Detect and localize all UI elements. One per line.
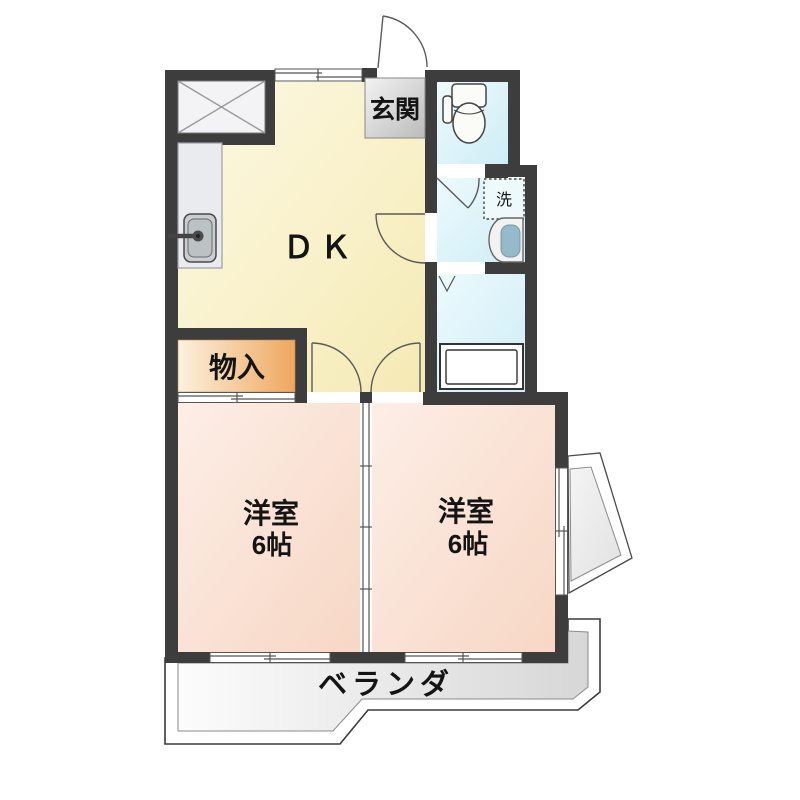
wall-segment (522, 652, 568, 663)
wall-segment (425, 70, 520, 82)
door-opening (437, 164, 485, 178)
wall-segment (485, 262, 525, 274)
sliding-window-symbol (210, 653, 330, 663)
wall-segment (525, 165, 537, 392)
door-opening (437, 262, 485, 274)
floor-plan-image: ベランダ (0, 0, 800, 800)
floor-plan: ベランダ (0, 0, 800, 800)
entrance-label: 玄関 (370, 95, 420, 124)
bathtub-icon (440, 344, 523, 389)
wall-segment (508, 70, 520, 177)
wall-segment (165, 652, 210, 663)
room2-label: 洋室 (438, 495, 494, 527)
wash-basin-icon (489, 218, 523, 262)
entrance-area: 玄関 (365, 78, 425, 138)
room1-size: 6帖 (252, 530, 292, 560)
wall-segment (555, 392, 568, 468)
wall-segment (165, 70, 178, 663)
door-opening (425, 213, 437, 262)
sliding-window-symbol (556, 468, 568, 595)
storage-label: 物入 (209, 352, 265, 383)
crossed-box-symbol (178, 81, 265, 133)
room1-label: 洋室 (243, 497, 299, 529)
wall-segment (425, 70, 437, 213)
sliding-window-symbol (275, 69, 362, 81)
door-opening (307, 392, 360, 403)
door-opening (372, 392, 423, 403)
wall-segment (425, 262, 437, 403)
side-balcony (568, 453, 632, 593)
room2-size: 6帖 (448, 529, 488, 559)
wall-segment (295, 328, 307, 403)
wall-segment (330, 652, 405, 663)
veranda-label: ベランダ (318, 667, 454, 701)
room-divider-sliding-door (360, 403, 372, 652)
western-room-2-floor (372, 403, 555, 652)
wall-segment (485, 164, 508, 178)
laundry-label: 洗 (496, 191, 512, 209)
door-swing-symbol (378, 16, 427, 68)
dk-label: ＤＫ (283, 230, 357, 265)
sliding-door-symbol (178, 393, 295, 403)
storage-closet: 物入 (178, 340, 295, 392)
wall-segment (165, 328, 307, 340)
wall-segment (423, 392, 568, 405)
western-room-1: 洋室 6帖 (243, 497, 299, 560)
sliding-window-symbol (405, 653, 522, 663)
wall-segment (360, 392, 372, 403)
